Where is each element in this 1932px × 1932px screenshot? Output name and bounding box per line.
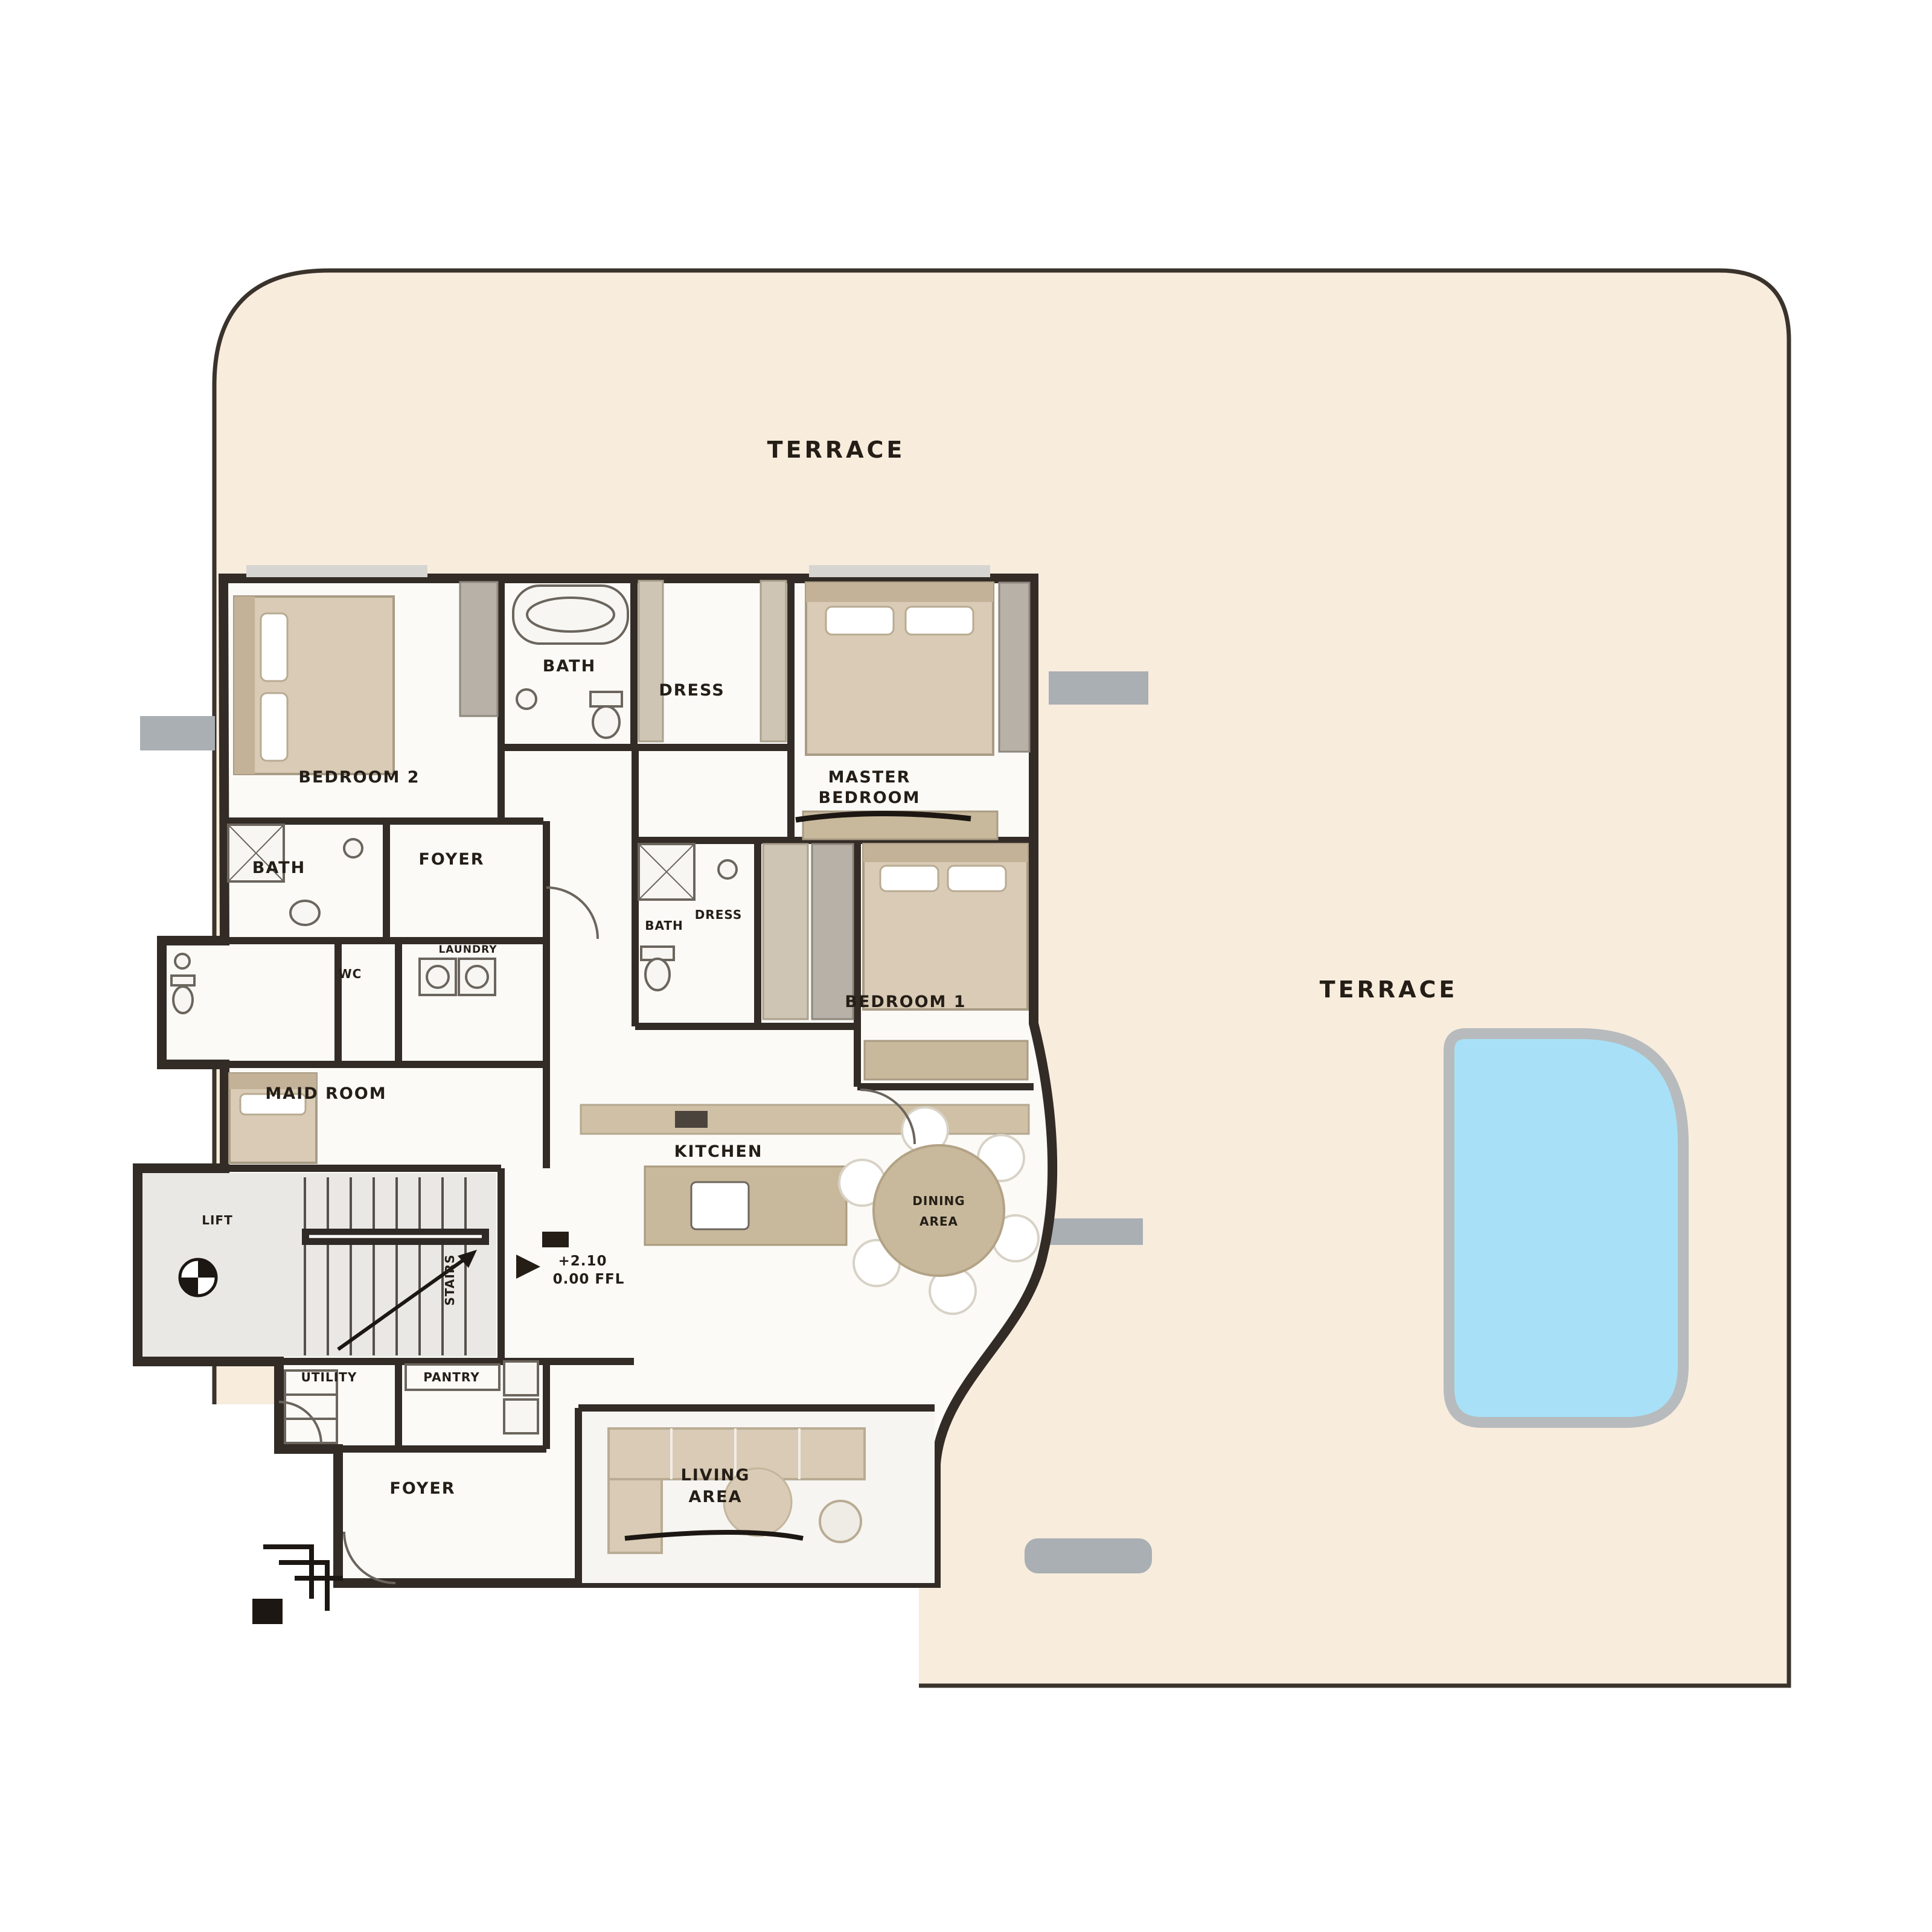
- master-label-line1: MASTER: [828, 768, 911, 787]
- ledge-master-east: [1049, 671, 1148, 705]
- living-label-line2: AREA: [688, 1488, 742, 1506]
- terrace-right-label: TERRACE: [1320, 976, 1458, 1003]
- utility-label: UTILITY: [301, 1370, 357, 1384]
- ledge-terrace-bench: [1025, 1538, 1152, 1573]
- pantry-label: PANTRY: [423, 1370, 479, 1384]
- entry-threshold: [252, 1599, 283, 1624]
- level-label-line1: +2.10: [558, 1253, 607, 1269]
- ledge-left: [140, 716, 215, 750]
- bath-top-label: BATH: [543, 657, 596, 676]
- master-wardrobe: [999, 583, 1029, 752]
- wc-label: WC: [339, 967, 362, 981]
- dress-top-shelf-right: [761, 581, 786, 741]
- kitchen-counter: [581, 1105, 1029, 1134]
- kitchen-counter-sink: [675, 1111, 708, 1128]
- kitchen-island-sink: [691, 1182, 749, 1229]
- kitchen-label: KITCHEN: [674, 1142, 763, 1161]
- bath2-label: BATH: [645, 918, 683, 933]
- lift-label: LIFT: [202, 1213, 233, 1227]
- bedroom1-bench: [865, 1041, 1028, 1080]
- level-label-line2: 0.00 FFL: [553, 1271, 625, 1287]
- bedroom2-wardrobe: [460, 582, 497, 716]
- bedroom2-label: BEDROOM 2: [298, 768, 420, 787]
- floor-plan-canvas: TERRACE TERRACE BEDROOM 2 BATH DRESS MAS…: [0, 0, 1932, 1932]
- living-armchair: [820, 1501, 861, 1542]
- dress-top-label: DRESS: [659, 681, 724, 700]
- entry-foyer-label: FOYER: [389, 1479, 455, 1498]
- bedroom1-label: BEDROOM 1: [845, 993, 966, 1011]
- terrace-top-label: TERRACE: [767, 437, 906, 463]
- dress-top-shelf-left: [639, 581, 663, 741]
- master-bed: [806, 583, 993, 755]
- dress2-shelf: [763, 844, 808, 1019]
- dining-label-line1: DINING: [912, 1194, 965, 1208]
- stairs-label: STAIRS: [443, 1254, 457, 1305]
- window-strip-master: [809, 565, 990, 577]
- north-arrow-icon: [180, 1259, 216, 1296]
- maid-room-label: MAID ROOM: [265, 1084, 386, 1103]
- bath-small-label: BATH: [252, 859, 305, 877]
- dress2-label: DRESS: [695, 907, 743, 922]
- bedroom1-bed: [863, 844, 1028, 1009]
- pool: [1449, 1034, 1683, 1422]
- living-label-line1: LIVING: [681, 1466, 750, 1485]
- foyer-mid-label: FOYER: [418, 850, 484, 869]
- dining-label-line2: AREA: [920, 1214, 958, 1229]
- window-strip-bedroom2: [246, 565, 427, 577]
- laundry-label: LAUNDRY: [438, 944, 497, 956]
- bedroom2-bed: [234, 597, 394, 774]
- master-label-line2: BEDROOM: [819, 788, 921, 807]
